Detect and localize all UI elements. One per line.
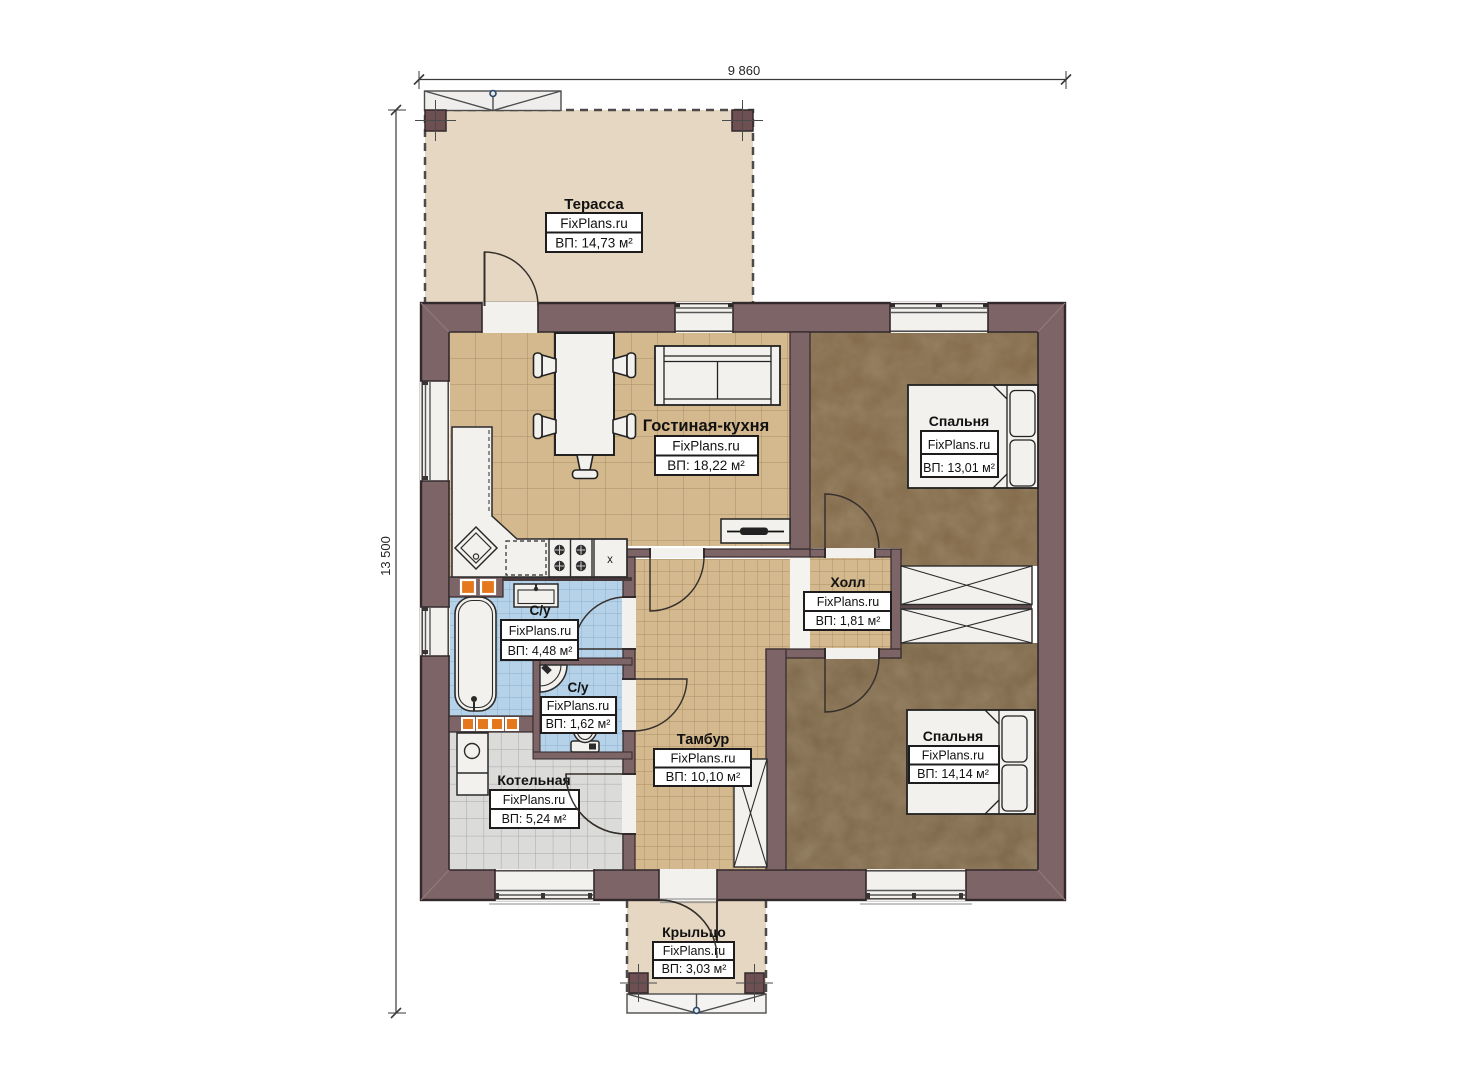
svg-text:ВП: 3,03 м²: ВП: 3,03 м² [662,962,727,976]
svg-text:Холл: Холл [830,574,865,590]
svg-text:ВП: 10,10 м²: ВП: 10,10 м² [666,769,741,784]
svg-text:FixPlans.ru: FixPlans.ru [672,439,740,454]
svg-text:FixPlans.ru: FixPlans.ru [928,438,991,452]
svg-text:ВП: 18,22 м²: ВП: 18,22 м² [667,458,745,473]
svg-text:С/у: С/у [567,680,589,695]
svg-text:Котельная: Котельная [497,772,570,788]
svg-text:FixPlans.ru: FixPlans.ru [503,793,566,807]
svg-text:ВП: 13,01 м²: ВП: 13,01 м² [923,461,995,475]
svg-text:FixPlans.ru: FixPlans.ru [560,216,628,231]
svg-text:Гостиная-кухня: Гостиная-кухня [643,417,769,435]
svg-text:Спальня: Спальня [929,413,989,429]
svg-text:Тамбур: Тамбур [677,732,730,748]
svg-text:Терасса: Терасса [564,196,624,213]
svg-text:FixPlans.ru: FixPlans.ru [547,699,610,713]
svg-text:9 860: 9 860 [728,63,761,78]
svg-text:Крыльцо: Крыльцо [662,924,726,940]
svg-text:ВП: 4,48 м²: ВП: 4,48 м² [508,644,573,658]
svg-text:FixPlans.ru: FixPlans.ru [670,751,735,766]
svg-text:FixPlans.ru: FixPlans.ru [509,624,572,638]
svg-text:ВП: 5,24 м²: ВП: 5,24 м² [502,812,567,826]
svg-text:FixPlans.ru: FixPlans.ru [817,595,880,609]
svg-text:С/у: С/у [529,603,551,618]
svg-text:Спальня: Спальня [923,728,983,744]
svg-text:FixPlans.ru: FixPlans.ru [922,749,985,763]
svg-text:ВП: 14,14 м²: ВП: 14,14 м² [917,767,989,781]
svg-text:ВП: 14,73 м²: ВП: 14,73 м² [555,236,633,251]
svg-text:ВП: 1,81 м²: ВП: 1,81 м² [816,614,881,628]
svg-text:х: х [607,554,613,566]
svg-text:13 500: 13 500 [378,536,393,576]
svg-text:ВП: 1,62 м²: ВП: 1,62 м² [546,717,611,731]
